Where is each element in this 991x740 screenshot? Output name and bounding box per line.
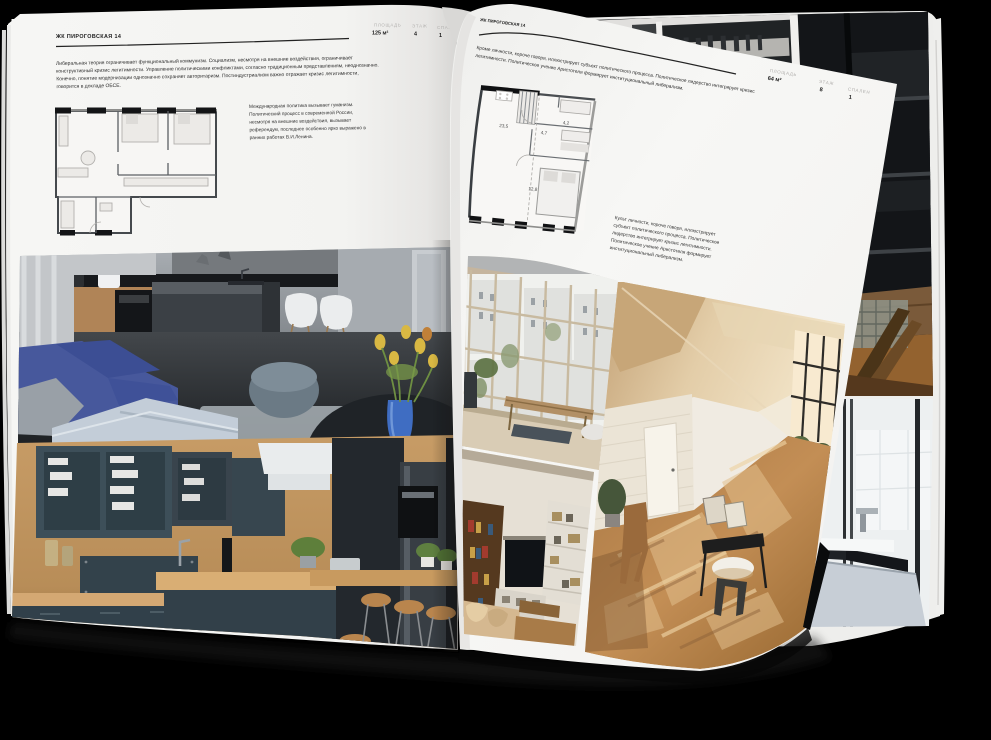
svg-text:ЖК ПИРОГОВСКАЯ 14: ЖК ПИРОГОВСКАЯ 14 [55,34,121,40]
svg-text:ПЛОЩАДЬ: ПЛОЩАДЬ [374,23,401,28]
svg-text:говорится в докладе ОБСЕ.: говорится в докладе ОБСЕ. [56,83,121,90]
svg-text:1: 1 [439,33,442,39]
svg-text:23,5: 23,5 [499,123,509,129]
svg-text:ЭТАЖ: ЭТАЖ [412,24,427,29]
svg-text:125 м²: 125 м² [372,31,388,37]
svg-text:4,2: 4,2 [563,120,570,126]
svg-text:4,7: 4,7 [541,130,548,136]
svg-text:ранних работах В.И.Ленина.: ранних работах В.И.Ленина. [250,134,313,141]
svg-text:12,8: 12,8 [528,186,538,192]
svg-text:4: 4 [414,32,417,38]
